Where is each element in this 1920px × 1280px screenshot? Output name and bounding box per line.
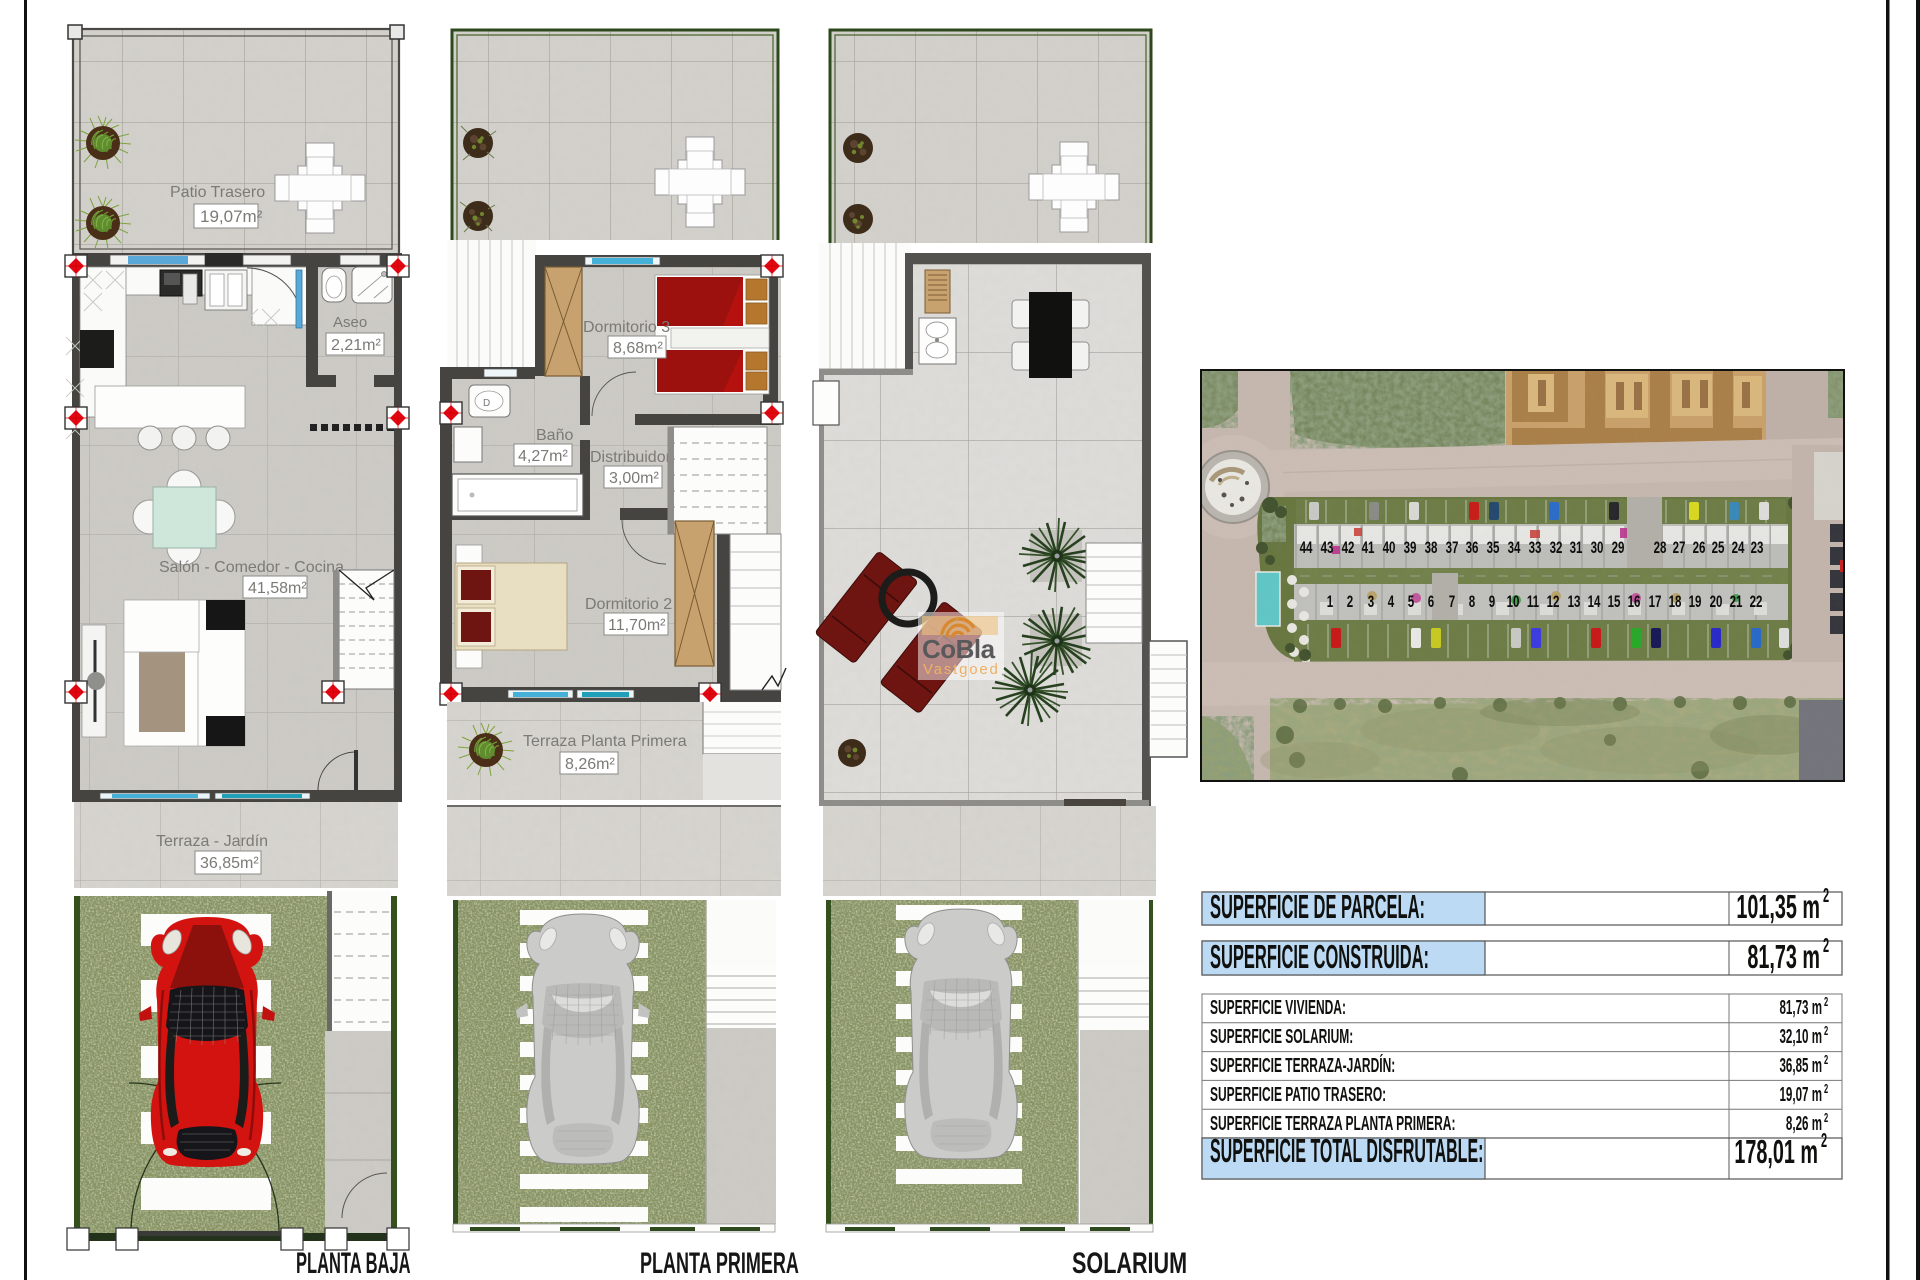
svg-text:Aseo: Aseo xyxy=(333,314,367,331)
svg-text:2: 2 xyxy=(1824,1024,1828,1039)
svg-text:32,10 m: 32,10 m xyxy=(1779,1026,1822,1048)
svg-text:2: 2 xyxy=(1824,1053,1828,1068)
svg-text:PLANTA PRIMERA: PLANTA PRIMERA xyxy=(640,1248,799,1280)
svg-text:2: 2 xyxy=(1824,995,1828,1010)
svg-text:CoBla: CoBla xyxy=(922,634,996,664)
svg-text:SOLARIUM: SOLARIUM xyxy=(1072,1245,1187,1279)
svg-text:2: 2 xyxy=(1824,1111,1828,1126)
svg-text:2: 2 xyxy=(1821,1130,1827,1152)
svg-text:Patio Trasero: Patio Trasero xyxy=(170,184,265,201)
svg-text:Dormitorio 3: Dormitorio 3 xyxy=(583,319,670,336)
svg-text:2: 2 xyxy=(1824,1082,1828,1097)
svg-text:Baño: Baño xyxy=(536,427,573,444)
svg-text:SUPERFICIE TERRAZA-JARDÍN:: SUPERFICIE TERRAZA-JARDÍN: xyxy=(1210,1054,1395,1077)
svg-text:8,26 m: 8,26 m xyxy=(1786,1113,1822,1135)
svg-text:8,68m²: 8,68m² xyxy=(613,340,663,357)
svg-text:Terraza Planta Primera: Terraza Planta Primera xyxy=(523,733,687,750)
svg-text:2: 2 xyxy=(1823,935,1829,957)
svg-text:36,85 m: 36,85 m xyxy=(1779,1055,1822,1077)
svg-text:SUPERFICIE TOTAL DISFRUTABLE:: SUPERFICIE TOTAL DISFRUTABLE: xyxy=(1210,1134,1483,1170)
svg-text:101,35 m: 101,35 m xyxy=(1736,888,1820,926)
svg-text:2: 2 xyxy=(1823,885,1829,907)
svg-text:36,85m²: 36,85m² xyxy=(200,855,259,872)
svg-text:19,07m²: 19,07m² xyxy=(200,207,263,226)
svg-text:81,73 m: 81,73 m xyxy=(1779,997,1822,1019)
svg-text:SUPERFICIE SOLARIUM:: SUPERFICIE SOLARIUM: xyxy=(1210,1026,1353,1048)
svg-text:3,00m²: 3,00m² xyxy=(609,470,659,487)
svg-text:SUPERFICIE TERRAZA PLANTA PRIM: SUPERFICIE TERRAZA PLANTA PRIMERA: xyxy=(1210,1113,1455,1135)
svg-text:8,26m²: 8,26m² xyxy=(565,756,615,773)
svg-text:Distribuidor: Distribuidor xyxy=(590,449,672,466)
svg-text:Terraza - Jardín: Terraza - Jardín xyxy=(156,833,268,850)
svg-text:4,27m²: 4,27m² xyxy=(518,448,568,465)
svg-text:11,70m²: 11,70m² xyxy=(608,617,666,634)
svg-text:178,01 m: 178,01 m xyxy=(1734,1133,1818,1171)
svg-text:41,58m²: 41,58m² xyxy=(248,580,307,597)
svg-text:SUPERFICIE CONSTRUIDA:: SUPERFICIE CONSTRUIDA: xyxy=(1210,938,1429,976)
svg-text:81,73 m: 81,73 m xyxy=(1747,938,1820,976)
svg-text:Salón - Comedor - Cocina: Salón - Comedor - Cocina xyxy=(159,559,344,576)
svg-text:19,07 m: 19,07 m xyxy=(1779,1084,1822,1106)
svg-text:Vastgoed: Vastgoed xyxy=(923,661,1000,678)
svg-text:D: D xyxy=(483,398,490,409)
svg-text:SUPERFICIE DE PARCELA:: SUPERFICIE DE PARCELA: xyxy=(1210,888,1425,926)
svg-text:2,21m²: 2,21m² xyxy=(331,337,381,354)
svg-text:PLANTA BAJA: PLANTA BAJA xyxy=(296,1247,411,1280)
svg-text:Dormitorio 2: Dormitorio 2 xyxy=(585,596,672,613)
svg-text:SUPERFICIE VIVIENDA:: SUPERFICIE VIVIENDA: xyxy=(1210,997,1346,1019)
svg-text:SUPERFICIE PATIO TRASERO:: SUPERFICIE PATIO TRASERO: xyxy=(1210,1084,1386,1106)
